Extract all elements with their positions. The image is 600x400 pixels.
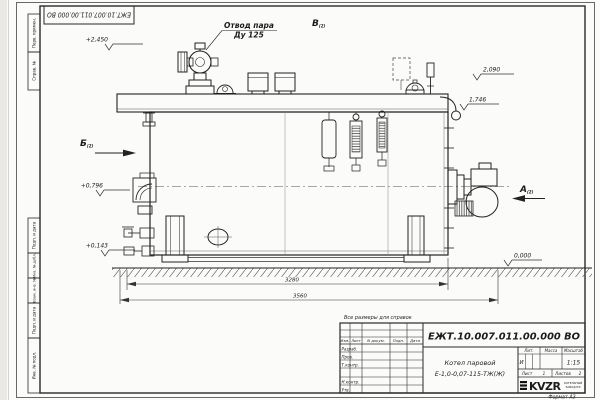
margin-stamp-labels: Перв. примен. Справ. № Подп. и дата Инв.… <box>32 18 37 379</box>
svg-text:Б(2): Б(2) <box>80 139 93 149</box>
sheets-label: Листов <box>554 371 571 376</box>
stamp-perv-primen: Перв. примен. <box>32 18 37 48</box>
water-gauge-2 <box>377 111 387 166</box>
burner <box>448 163 498 217</box>
dim-3280-value: 3280 <box>285 278 299 284</box>
manhole <box>204 226 232 248</box>
col-docnum: N докум. <box>367 338 385 343</box>
boiler-front-support <box>162 216 188 262</box>
stamp-inv-podl: Инв. № подл. <box>32 352 37 380</box>
elevation-0000-value: 0,000 <box>514 253 531 260</box>
boiler-rear-support <box>404 216 430 262</box>
elevation-2090-value: 2,090 <box>483 67 500 74</box>
kvzr-logo: KVZR КОТЕЛЬНЫЙ ЗАВОД РФ <box>520 380 582 393</box>
col-list: Лист <box>350 338 361 343</box>
boiler-body <box>150 112 448 255</box>
elevation-0796: +0,796 <box>81 183 130 197</box>
steam-outlet-label-1: Отвод пара <box>224 21 274 30</box>
feedwater-elbow <box>133 173 156 202</box>
elevation-1746-value: 1,746 <box>469 97 486 104</box>
col-podp: Подп. <box>393 338 405 343</box>
sheet-value: 1 <box>543 371 546 376</box>
row-prov: Пров. <box>342 355 354 360</box>
front-top-valve <box>143 113 155 126</box>
elevation-2090: 2,090 <box>473 67 514 81</box>
doc-number-top-box: ЕЖТ.10.007.011.00.000 ВО <box>44 6 134 24</box>
top-hatch-box-1 <box>248 73 268 94</box>
steam-outlet-note: Отвод пара Ду 125 <box>206 21 277 50</box>
view-v-ref: (2) <box>319 24 326 29</box>
rear-plate <box>444 112 454 255</box>
col-izm: Изм. <box>341 338 350 343</box>
safety-valve <box>406 80 424 94</box>
view-label-v: В(2) <box>312 19 325 29</box>
view-a-letter: А <box>519 185 527 195</box>
level-column <box>322 112 336 171</box>
doc-number-top: ЕЖТ.10.007.011.00.000 ВО <box>47 11 131 19</box>
elevation-0143: +0,143 <box>86 243 135 257</box>
row-utv: Утв. <box>342 388 350 393</box>
lit-value: И <box>520 360 524 366</box>
lever-rod <box>427 63 434 94</box>
stamp-podp-data-1: Подп. и дата <box>32 221 37 249</box>
blowdown-pipe <box>188 258 404 262</box>
svg-text:В(2): В(2) <box>312 19 325 29</box>
dim-3560-value: 3560 <box>293 294 307 300</box>
stamp-podp-data-2: Подп. и дата <box>32 306 37 334</box>
scale-value: 1:15 <box>567 360 581 367</box>
view-label-b: Б(2) <box>80 139 136 156</box>
row-tkontr: Т.контр. <box>342 363 359 368</box>
siphon-pipe <box>440 97 461 120</box>
steam-outlet-label-2: Ду 125 <box>233 31 264 40</box>
reference-note: Все размеры для справок <box>344 315 412 321</box>
lit-label: Лит. <box>523 348 533 353</box>
drawing-canvas: ЕЖТ.10.007.011.00.000 ВО Перв. примен. С… <box>0 0 600 400</box>
boiler-top-platform <box>117 94 448 112</box>
elevation-2450: +2,450 <box>86 37 143 51</box>
scan-edge <box>0 0 7 400</box>
format-label: Формат А3 <box>548 395 575 400</box>
elevation-0796-value: +0,796 <box>81 183 103 190</box>
kvzr-logo-text: KVZR <box>529 380 562 393</box>
stamp-inv-dubl: Инв. № дубл. <box>33 253 37 278</box>
elevation-1746: 1,746 <box>460 97 499 111</box>
elevation-0000: 0,000 <box>504 253 542 267</box>
water-gauge-1 <box>350 112 362 171</box>
svg-text:А(2): А(2) <box>519 185 534 195</box>
row-razrab: Разраб. <box>342 347 358 352</box>
kvzr-logo-sub2: ЗАВОД РФ <box>566 385 582 389</box>
stamp-sprav-no: Справ. № <box>32 61 37 80</box>
mass-label: Масса <box>545 348 558 353</box>
view-label-a: А(2) <box>512 185 545 202</box>
view-a-ref: (2) <box>527 190 534 195</box>
col-data: Дата <box>409 338 421 343</box>
elevation-2450-value: +2,450 <box>86 37 108 44</box>
product-name-1: Котел паровой <box>445 359 496 367</box>
top-hatch-box-2 <box>275 73 295 94</box>
ground-line <box>112 268 592 277</box>
sheets-value: 2 <box>579 371 582 376</box>
scanned-drawing-page: ЕЖТ.10.007.011.00.000 ВО Перв. примен. С… <box>0 0 600 400</box>
view-b-ref: (2) <box>87 144 94 149</box>
row-nkontr: Н.контр. <box>342 380 360 385</box>
sheet-label: Лист <box>521 371 533 376</box>
dashed-outline <box>393 58 410 80</box>
steam-outlet-valve <box>178 43 218 94</box>
product-name-2: Е-1,0-0,07-115-ТЖ(Ж) <box>435 371 505 378</box>
elevation-0143-value: +0,143 <box>86 243 108 250</box>
dome-cover <box>214 85 236 94</box>
doc-number-main: ЕЖТ.10.007.011.00.000 ВО <box>428 332 580 343</box>
stamp-vzam-inv: Взам. инв. № <box>33 278 37 303</box>
front-drain-valve-1 <box>122 227 154 238</box>
scale-label: Масштаб <box>564 348 584 353</box>
